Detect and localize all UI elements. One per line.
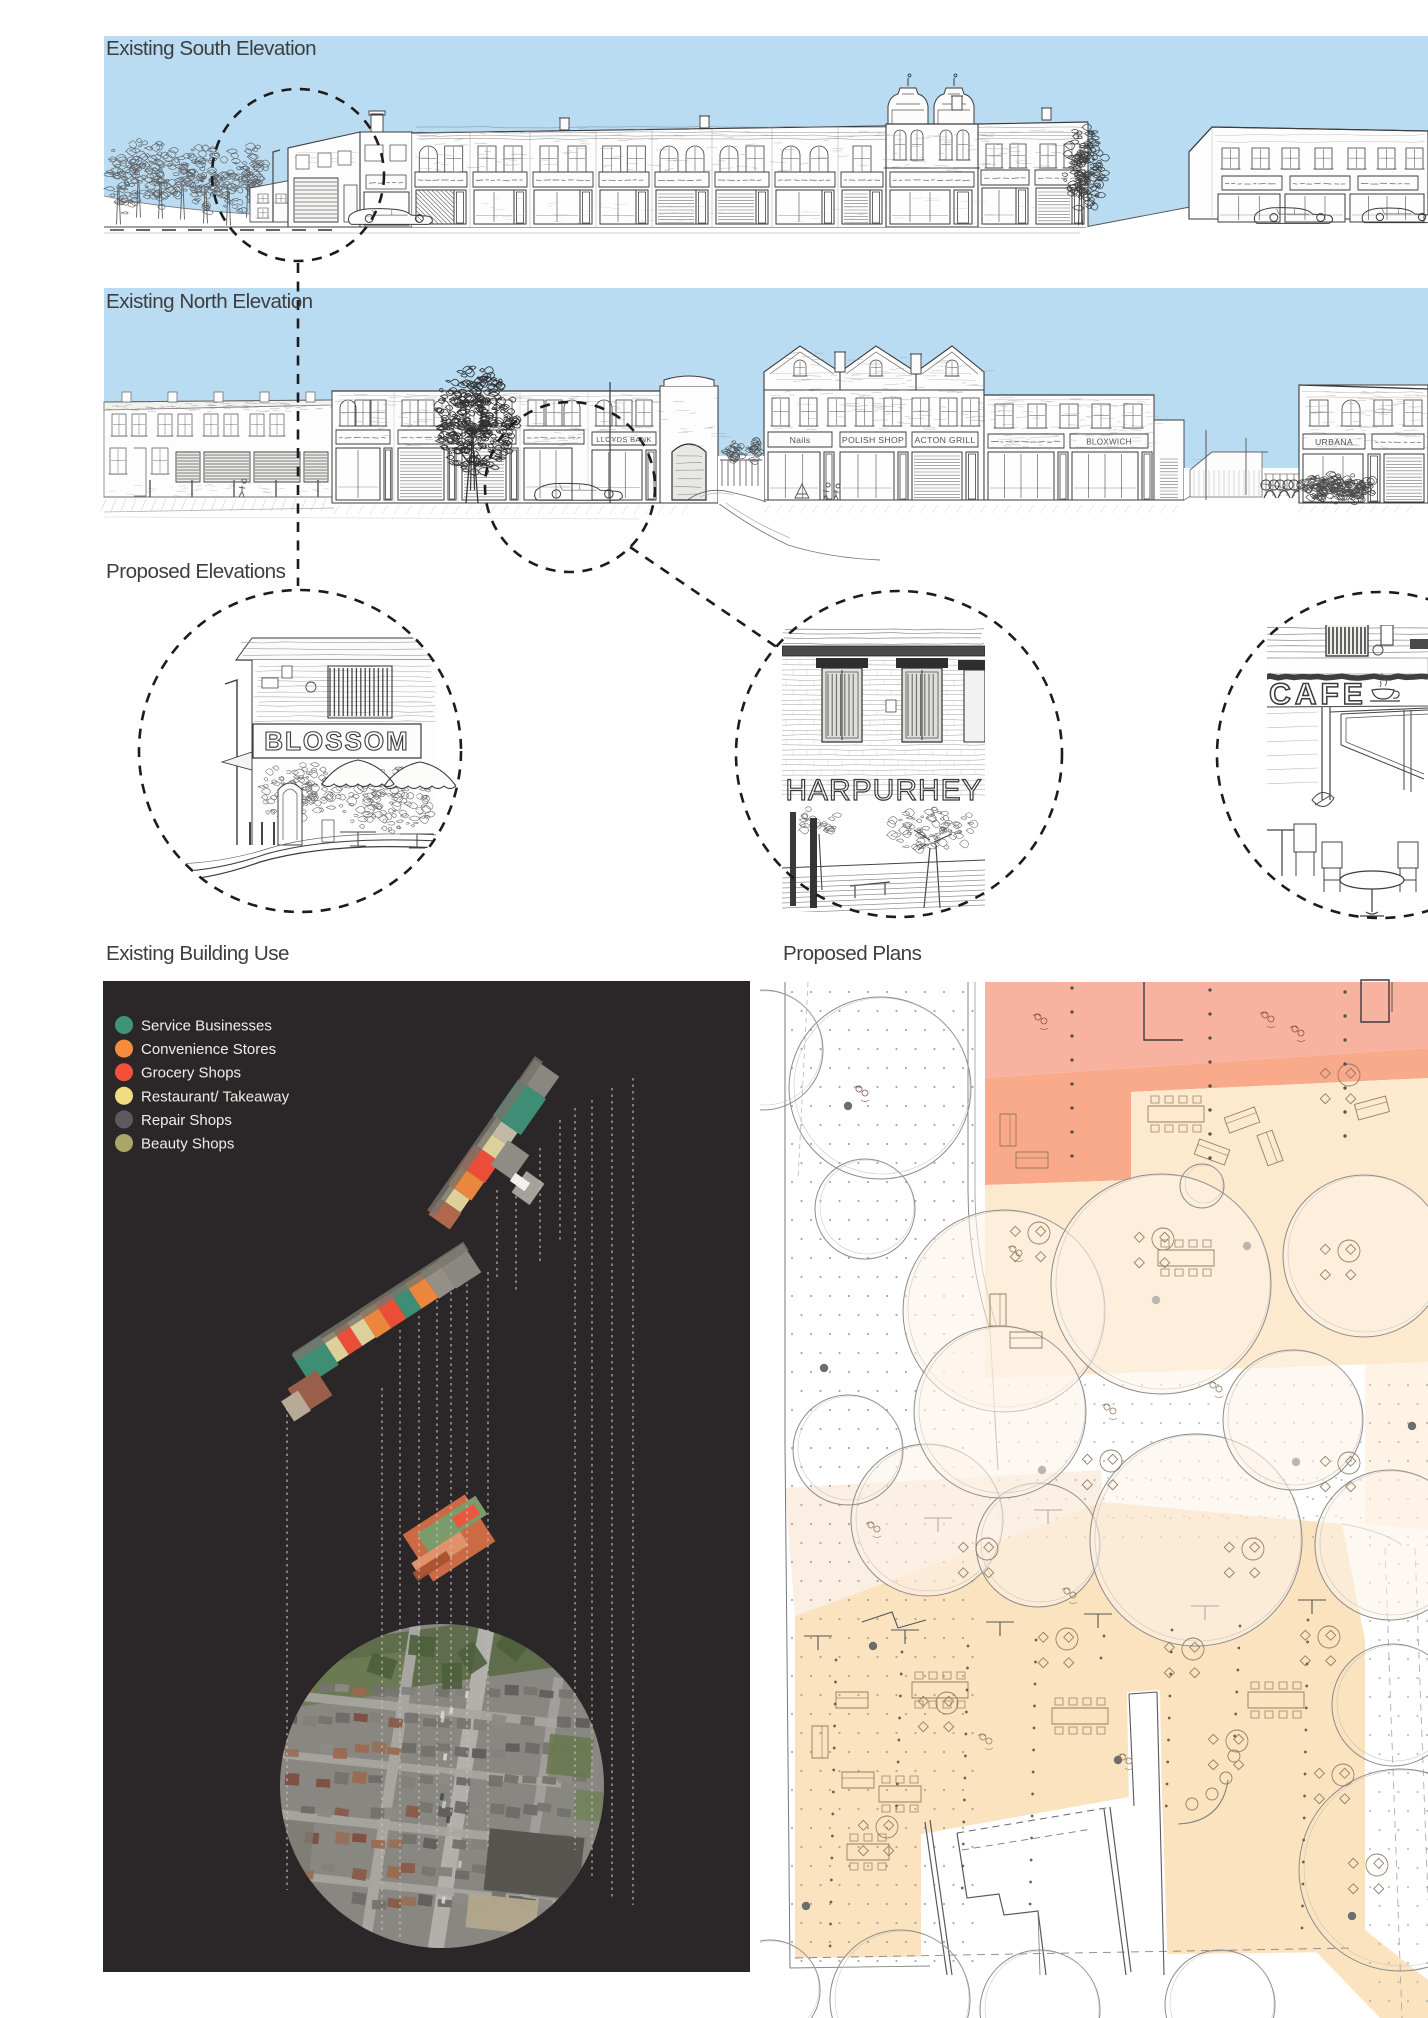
svg-text:Service Businesses: Service Businesses	[141, 1018, 272, 1035]
svg-text:Proposed Plans: Proposed Plans	[783, 942, 922, 965]
svg-text:POLISH SHOP: POLISH SHOP	[842, 435, 904, 445]
svg-text:Repair Shops: Repair Shops	[141, 1112, 232, 1129]
svg-text:Existing South Elevation: Existing South Elevation	[106, 37, 316, 60]
svg-text:Convenience Stores: Convenience Stores	[141, 1041, 276, 1058]
svg-text:Existing Building Use: Existing Building Use	[106, 942, 289, 965]
svg-text:Restaurant/ Takeaway: Restaurant/ Takeaway	[141, 1088, 290, 1105]
svg-text:Existing North Elevation: Existing North Elevation	[106, 290, 313, 313]
svg-text:BLOSSOM: BLOSSOM	[264, 726, 409, 756]
svg-text:URBANA: URBANA	[1315, 437, 1353, 447]
svg-text:CAFE: CAFE	[1269, 678, 1367, 711]
svg-text:ACTON GRILL: ACTON GRILL	[914, 435, 975, 445]
svg-text:BLOXWICH: BLOXWICH	[1086, 438, 1132, 447]
svg-text:Proposed Elevations: Proposed Elevations	[106, 560, 286, 583]
svg-text:Beauty Shops: Beauty Shops	[141, 1136, 234, 1153]
svg-text:Grocery Shops: Grocery Shops	[141, 1065, 241, 1082]
svg-text:LLOYDS BANK: LLOYDS BANK	[596, 435, 651, 444]
svg-text:HARPURHEY: HARPURHEY	[785, 774, 982, 807]
svg-text:Nails: Nails	[790, 435, 811, 445]
